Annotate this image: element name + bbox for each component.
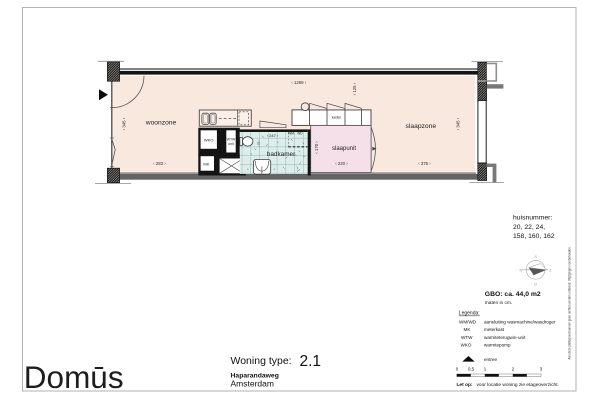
svg-text:‹ 85 ›: ‹ 85 › (256, 140, 260, 147)
svg-text:voor locatie woning zie etageo: voor locatie woning zie etageoverzicht. (477, 382, 559, 388)
svg-text:badkamer: badkamer (267, 151, 296, 158)
svg-text:2.1: 2.1 (300, 353, 322, 370)
svg-text:WM: WM (288, 131, 294, 135)
svg-text:N: N (520, 267, 523, 272)
svg-text:Aan deze plattegrond kunnen ge: Aan deze plattegrond kunnen geen rechten… (568, 246, 572, 359)
svg-text:MK: MK (464, 327, 472, 332)
svg-text:slaapzone: slaapzone (406, 123, 437, 130)
svg-text:MK: MK (203, 161, 209, 166)
svg-text:‹ 375 ›: ‹ 375 › (418, 161, 431, 166)
svg-text:20, 22, 24,: 20, 22, 24, (513, 224, 545, 231)
svg-text:S: S (534, 254, 537, 259)
svg-text:Amsterdam: Amsterdam (231, 379, 274, 389)
svg-text:‹ 283 ›: ‹ 283 › (153, 161, 166, 166)
svg-text:Domūs: Domūs (24, 359, 124, 395)
svg-text:unit: unit (228, 142, 234, 146)
svg-text:WTW: WTW (461, 335, 473, 340)
svg-text:O: O (534, 282, 537, 287)
svg-text:‹ 1269 ›: ‹ 1269 › (291, 80, 306, 85)
svg-text:entree: entree (484, 357, 497, 362)
svg-text:GBO: ca. 44,0 m2: GBO: ca. 44,0 m2 (485, 291, 541, 298)
svg-text:‹ 125 ›: ‹ 125 › (352, 82, 357, 95)
svg-text:WKO: WKO (461, 342, 472, 347)
svg-text:‹ 247 ›: ‹ 247 › (267, 133, 279, 138)
svg-text:Let op:: Let op: (457, 382, 473, 388)
svg-text:aansluiting wasmachine/wasdrog: aansluiting wasmachine/wasdroger (484, 320, 556, 325)
svg-text:Legenda:: Legenda: (459, 311, 480, 317)
svg-text:kasten: kasten (332, 116, 342, 120)
svg-text:0,5: 0,5 (468, 366, 475, 371)
svg-text:slaapunit: slaapunit (332, 146, 356, 152)
svg-text:‹ 170 ›: ‹ 170 › (314, 141, 319, 154)
svg-text:‹ 220 ›: ‹ 220 › (335, 161, 348, 166)
svg-text:WKO: WKO (204, 137, 214, 142)
svg-text:maten in cm.: maten in cm. (485, 300, 512, 306)
svg-text:Woning type:: Woning type: (231, 355, 292, 367)
svg-text:‹ 345 ›: ‹ 345 › (456, 117, 461, 130)
svg-text:warmtepomp: warmtepomp (484, 342, 511, 347)
svg-text:WD: WD (297, 131, 303, 135)
svg-text:meterkast: meterkast (484, 327, 505, 332)
svg-text:huisnummer:: huisnummer: (513, 215, 552, 222)
svg-text:WM/WD: WM/WD (459, 320, 477, 325)
svg-text:158, 160, 162: 158, 160, 162 (513, 233, 555, 240)
svg-text:‹ 345 ›: ‹ 345 › (122, 117, 127, 130)
svg-text:woonzone: woonzone (145, 119, 177, 126)
svg-text:warmteterugwin-unit: warmteterugwin-unit (484, 335, 526, 340)
